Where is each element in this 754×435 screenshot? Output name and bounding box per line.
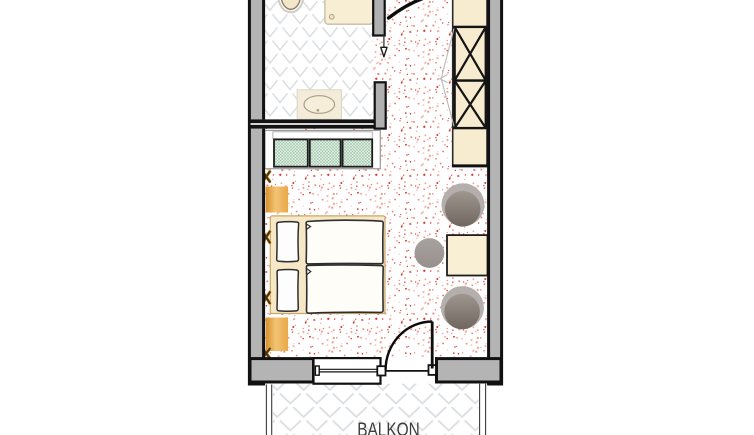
svg-text:BALKON: BALKON [357,419,420,435]
